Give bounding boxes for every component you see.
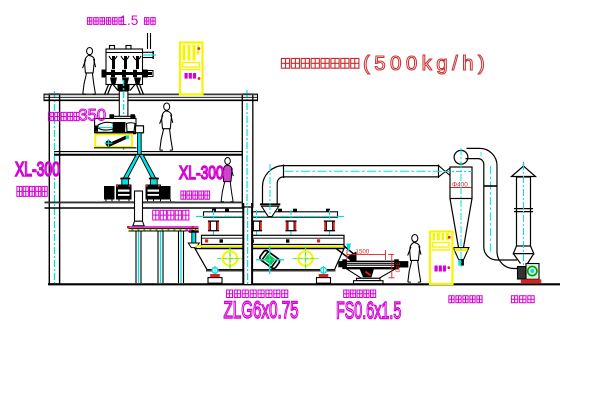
svg-text:XL-300: XL-300: [179, 163, 224, 183]
svg-text:1.5: 1.5: [120, 13, 139, 28]
svg-text:FS0.6x1.5: FS0.6x1.5: [336, 298, 401, 325]
svg-text:ZLG6x0.75: ZLG6x0.75: [224, 298, 299, 324]
svg-text:340: 340: [394, 262, 401, 273]
svg-text:(500kg/h): (500kg/h): [363, 52, 489, 75]
svg-text:Φ400: Φ400: [452, 182, 468, 189]
svg-text:1500: 1500: [356, 249, 370, 256]
svg-text:XL-300: XL-300: [15, 157, 60, 180]
svg-text:350: 350: [79, 107, 107, 125]
